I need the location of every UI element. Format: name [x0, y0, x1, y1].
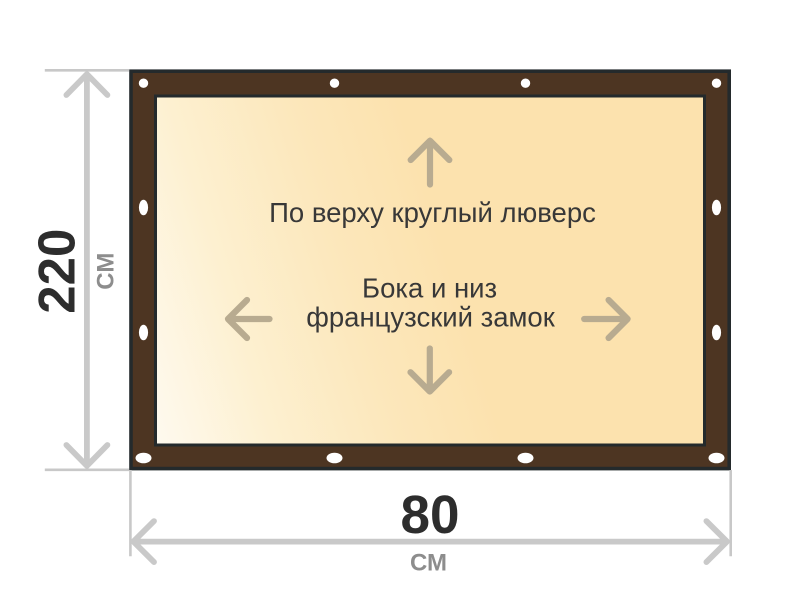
svg-text:СМ: СМ	[92, 253, 119, 290]
svg-text:Бока и низ: Бока и низ	[362, 273, 497, 304]
svg-text:80: 80	[401, 485, 460, 545]
svg-text:французский замок: французский замок	[306, 301, 555, 332]
svg-text:220: 220	[29, 229, 87, 314]
svg-text:СМ: СМ	[410, 549, 447, 576]
svg-text:По верху круглый люверс: По верху круглый люверс	[269, 197, 596, 228]
